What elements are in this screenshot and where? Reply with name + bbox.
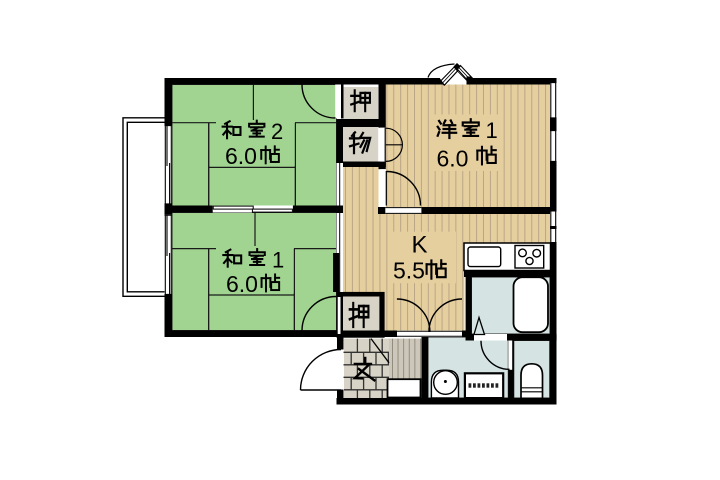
svg-text:5.5: 5.5: [393, 258, 425, 284]
svg-text:6.0: 6.0: [437, 146, 469, 172]
svg-text:6.0: 6.0: [225, 143, 257, 169]
svg-text:K: K: [412, 232, 428, 259]
svg-text:2: 2: [271, 119, 283, 144]
svg-text:1: 1: [486, 118, 498, 143]
svg-text:1: 1: [272, 247, 284, 272]
svg-text:6.0: 6.0: [226, 271, 258, 297]
